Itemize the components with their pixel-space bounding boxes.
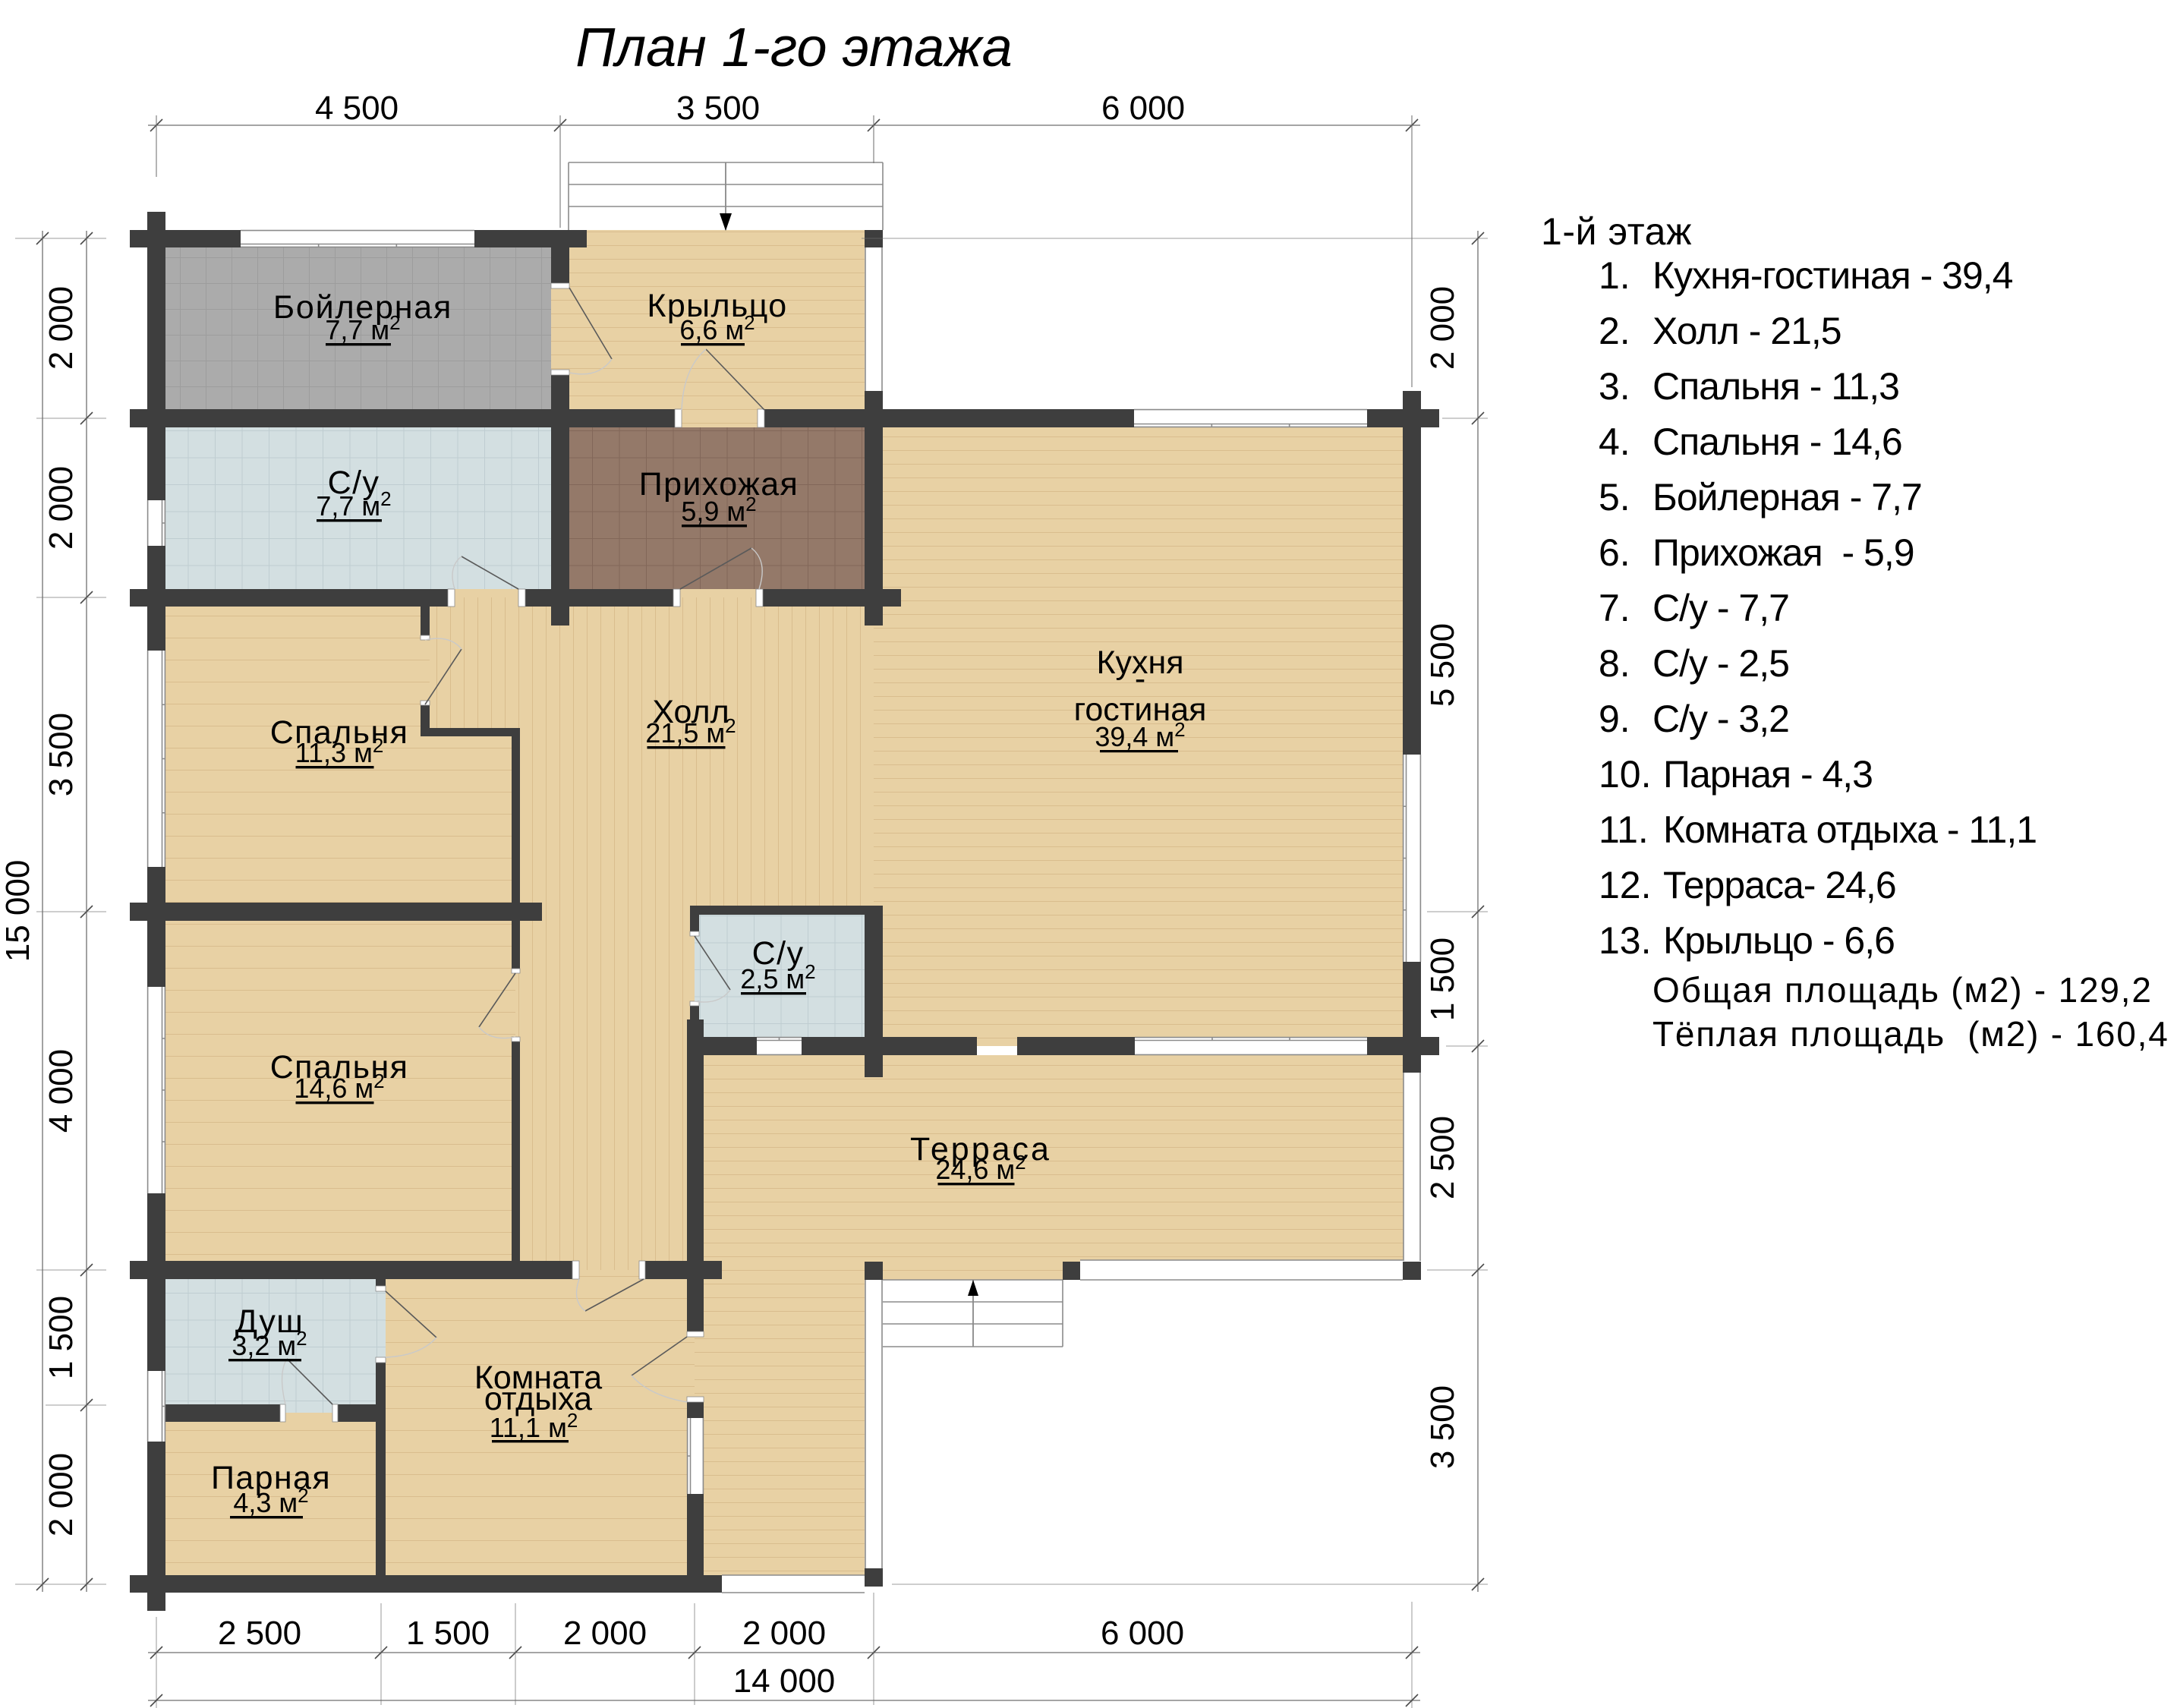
svg-text:6,6 м2: 6,6 м2 bbox=[679, 311, 755, 345]
svg-text:2 500: 2 500 bbox=[1424, 1116, 1461, 1199]
svg-text:3 500: 3 500 bbox=[43, 713, 80, 796]
svg-text:Терраса- 24,6: Терраса- 24,6 bbox=[1663, 864, 1896, 906]
svg-text:39,4 м2: 39,4 м2 bbox=[1095, 718, 1185, 752]
svg-text:11.: 11. bbox=[1599, 808, 1649, 851]
svg-text:21,5 м2: 21,5 м2 bbox=[645, 714, 736, 748]
svg-text:4 000: 4 000 bbox=[43, 1049, 80, 1133]
svg-text:6 000: 6 000 bbox=[1101, 1615, 1184, 1652]
svg-text:4 500: 4 500 bbox=[315, 90, 399, 127]
svg-text:2,5 м2: 2,5 м2 bbox=[740, 960, 815, 994]
svg-text:7.: 7. bbox=[1599, 587, 1630, 629]
svg-text:Спальня - 11,3: Спальня - 11,3 bbox=[1652, 365, 1899, 408]
svg-text:7,7 м2: 7,7 м2 bbox=[316, 487, 391, 522]
svg-text:11,1 м2: 11,1 м2 bbox=[490, 1409, 578, 1443]
svg-text:5,9 м2: 5,9 м2 bbox=[681, 493, 756, 527]
svg-text:15 000: 15 000 bbox=[0, 860, 36, 963]
svg-text:9.: 9. bbox=[1599, 698, 1630, 740]
svg-text:1 500: 1 500 bbox=[1424, 938, 1461, 1021]
svg-text:24,6 м2: 24,6 м2 bbox=[935, 1151, 1025, 1185]
svg-text:5 500: 5 500 bbox=[1424, 623, 1461, 707]
svg-text:8.: 8. bbox=[1599, 642, 1630, 685]
svg-text:6.: 6. bbox=[1599, 531, 1630, 574]
svg-text:2 500: 2 500 bbox=[218, 1615, 301, 1652]
svg-text:С/у - 7,7: С/у - 7,7 bbox=[1652, 587, 1789, 629]
svg-text:1 500: 1 500 bbox=[406, 1615, 490, 1652]
svg-text:Тёплая площадь (м2) - 160,4: Тёплая площадь (м2) - 160,4 bbox=[1652, 1014, 2169, 1054]
svg-text:4.: 4. bbox=[1599, 421, 1630, 463]
svg-text:1-й этаж: 1-й этаж bbox=[1541, 210, 1692, 253]
svg-text:10.: 10. bbox=[1599, 753, 1652, 796]
svg-text:План 1-го этажа: План 1-го этажа bbox=[575, 17, 1012, 78]
svg-text:5.: 5. bbox=[1599, 476, 1630, 518]
svg-text:Спальня - 14,6: Спальня - 14,6 bbox=[1652, 421, 1902, 463]
svg-text:Общая площадь (м2) - 129,2: Общая площадь (м2) - 129,2 bbox=[1652, 970, 2153, 1010]
svg-text:3,2 м2: 3,2 м2 bbox=[232, 1327, 307, 1361]
svg-text:Крыльцо - 6,6: Крыльцо - 6,6 bbox=[1663, 919, 1895, 962]
svg-text:Холл - 21,5: Холл - 21,5 bbox=[1652, 310, 1841, 352]
svg-text:2 000: 2 000 bbox=[43, 1453, 80, 1536]
svg-text:11,3 м2: 11,3 м2 bbox=[295, 734, 384, 768]
svg-text:Парная - 4,3: Парная - 4,3 bbox=[1663, 753, 1873, 796]
svg-text:Прихожая - 5,9: Прихожая - 5,9 bbox=[1652, 531, 1914, 574]
svg-text:3 500: 3 500 bbox=[1424, 1385, 1461, 1469]
svg-text:2 000: 2 000 bbox=[43, 466, 80, 550]
svg-text:Бойлерная - 7,7: Бойлерная - 7,7 bbox=[1652, 476, 1922, 518]
svg-text:2 000: 2 000 bbox=[742, 1615, 826, 1652]
svg-text:2 000: 2 000 bbox=[1424, 286, 1461, 370]
svg-text:12.: 12. bbox=[1599, 864, 1652, 906]
svg-text:14,6 м2: 14,6 м2 bbox=[294, 1070, 384, 1104]
svg-text:2.: 2. bbox=[1599, 310, 1630, 352]
svg-text:Комната отдыха - 11,1: Комната отдыха - 11,1 bbox=[1663, 808, 2037, 851]
svg-text:3.: 3. bbox=[1599, 365, 1630, 408]
svg-text:С/у - 3,2: С/у - 3,2 bbox=[1652, 698, 1789, 740]
svg-text:С/у - 2,5: С/у - 2,5 bbox=[1652, 642, 1789, 685]
svg-text:2 000: 2 000 bbox=[43, 286, 80, 370]
svg-text:Кухня-гостиная - 39,4: Кухня-гостиная - 39,4 bbox=[1652, 254, 2013, 297]
svg-text:1 500: 1 500 bbox=[43, 1296, 80, 1379]
svg-text:4,3 м2: 4,3 м2 bbox=[233, 1484, 308, 1518]
svg-text:13.: 13. bbox=[1599, 919, 1652, 962]
svg-text:3 500: 3 500 bbox=[676, 90, 760, 127]
svg-text:2 000: 2 000 bbox=[563, 1615, 647, 1652]
svg-text:14 000: 14 000 bbox=[733, 1662, 836, 1700]
svg-text:6 000: 6 000 bbox=[1101, 90, 1185, 127]
svg-text:7,7 м2: 7,7 м2 bbox=[325, 311, 400, 345]
svg-text:1.: 1. bbox=[1599, 254, 1630, 297]
